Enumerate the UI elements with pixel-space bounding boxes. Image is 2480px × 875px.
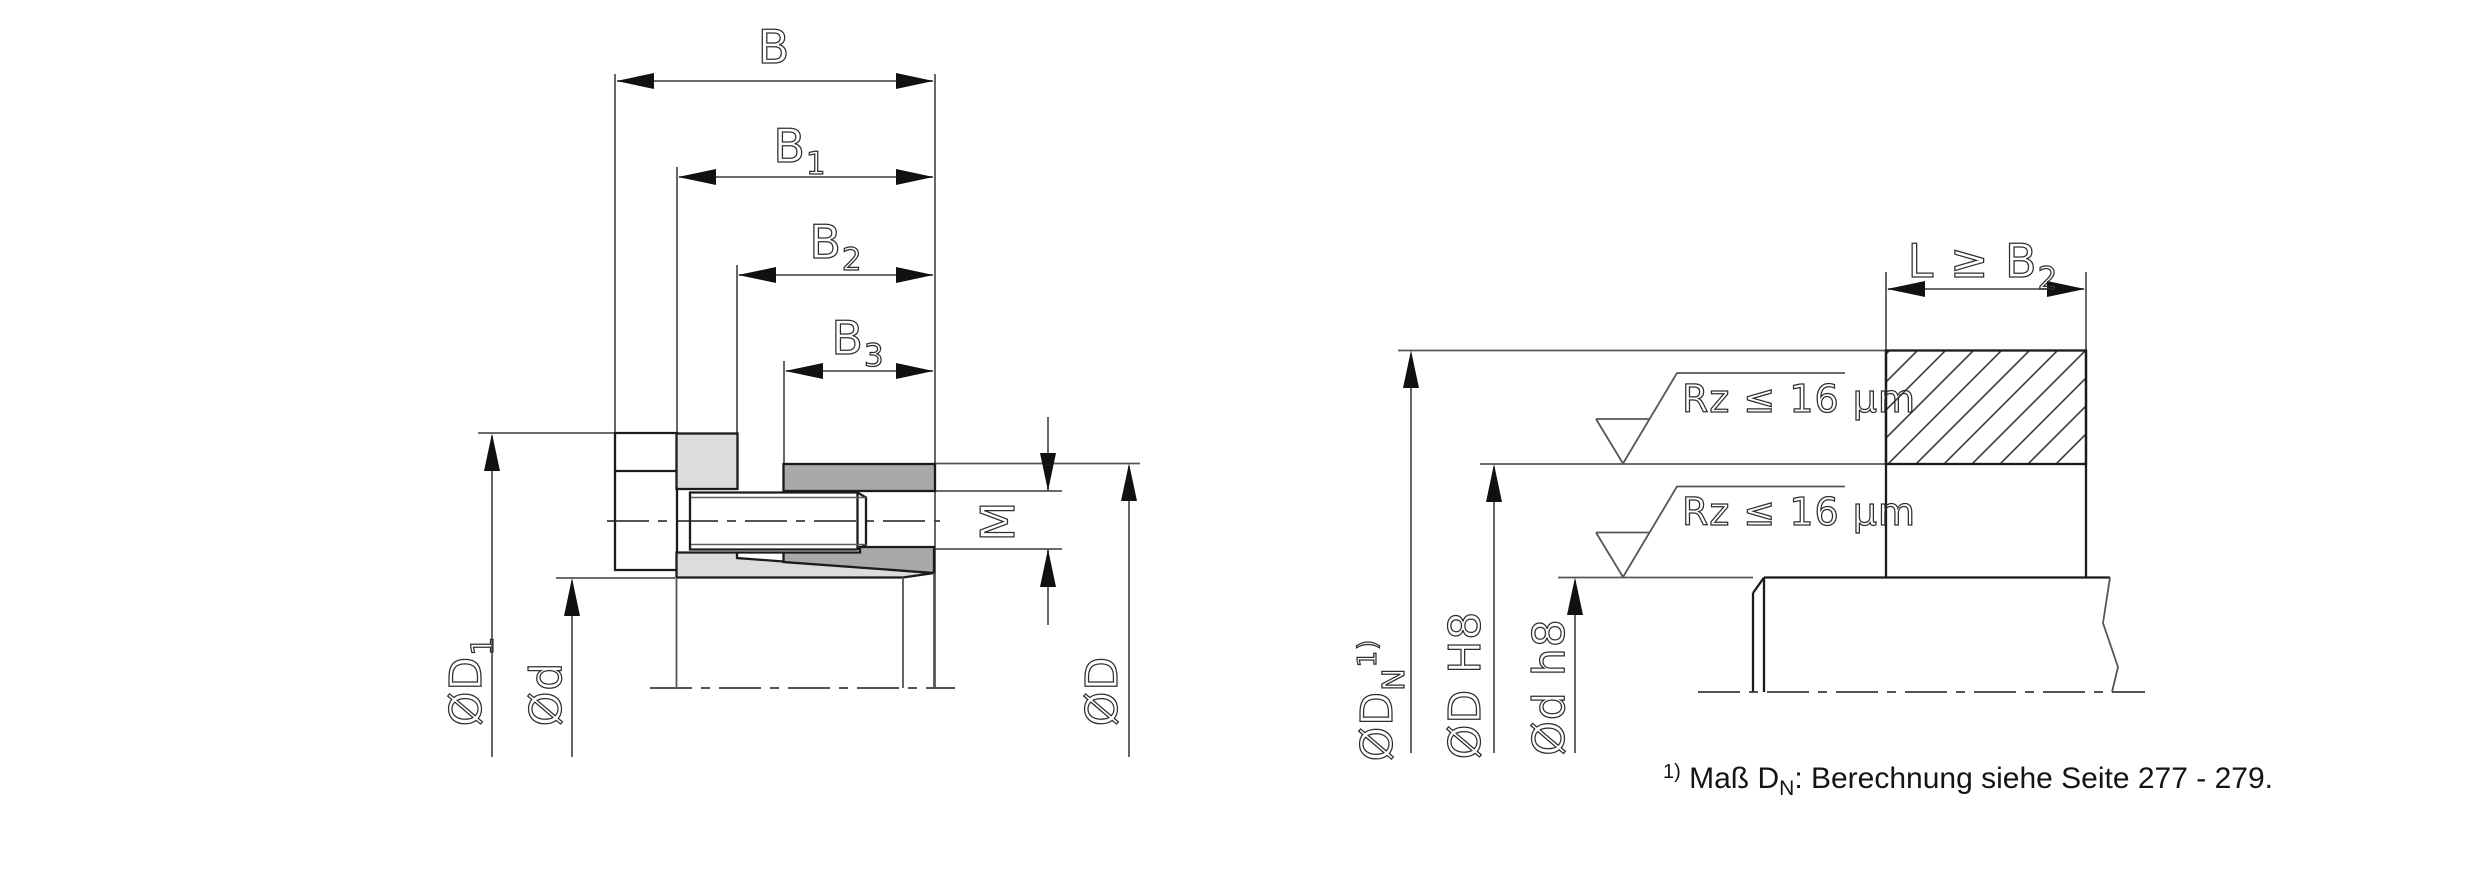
arrowhead [785,363,823,379]
dim-label-b: B [758,20,791,74]
dim-label-b1: B1 [773,119,826,182]
thread-label-m: M [971,501,1025,542]
clamping-element-drawing: B B1 B2 B3 M ØD1 Ød ØD [0,0,2480,875]
dia-label-d-h8: ØD H8 [1440,611,1491,760]
hub-hatched-area [1886,351,2086,465]
dia-label-d-bore: ØD [1077,656,1128,727]
dia-label-d-h8-small: Ød h8 [1524,618,1575,755]
arrowhead [678,169,716,185]
flange-ring-outline [615,433,677,570]
shaft [1753,578,2118,693]
arrowhead [1040,549,1056,587]
shaft-break-line [2103,578,2118,693]
shaft-end-chamfer [1753,578,1764,594]
technical-drawing-page: B B1 B2 B3 M ØD1 Ød ØD [0,0,2480,875]
part-geometry [615,433,935,688]
outer-ring-section-top [677,434,738,490]
arrowhead [896,267,934,283]
dia-label-d-shaft: Ød [521,662,572,727]
arrowhead [1486,464,1502,502]
arrowhead [1403,351,1419,389]
footnote: 1) Maß DN: Berechnung siehe Seite 277 - … [1663,761,2273,800]
inner-ring-section-top [784,464,936,491]
hub-section [1886,351,2086,578]
arrowhead [896,363,934,379]
arrowhead [1567,578,1583,616]
dim-label-b3: B3 [831,311,884,374]
dim-label-b2: B2 [809,215,862,278]
right-figure-labels: L ≥ B2 Rz ≤ 16 µm Rz ≤ 16 µm ØDN1) ØD H8… [1352,234,2058,761]
roughness-label-bore: Rz ≤ 16 µm [1682,377,1916,421]
right-figure-hub-shaft-mounting: L ≥ B2 Rz ≤ 16 µm Rz ≤ 16 µm ØDN1) ØD H8… [1352,234,2273,800]
arrowhead [564,578,580,616]
arrowhead [1040,453,1056,491]
dim-label-l: L ≥ B2 [1908,234,2059,297]
arrowhead [1121,464,1137,502]
arrowhead [617,73,655,89]
left-figure-clamping-set-section: B B1 B2 B3 M ØD1 Ød ØD [441,20,1140,757]
roughness-label-shaft: Rz ≤ 16 µm [1682,490,1916,534]
arrowhead [896,169,934,185]
arrowhead [896,73,934,89]
arrowhead [738,267,776,283]
dia-label-dn: ØDN1) [1352,639,1412,762]
arrowhead [484,434,500,472]
